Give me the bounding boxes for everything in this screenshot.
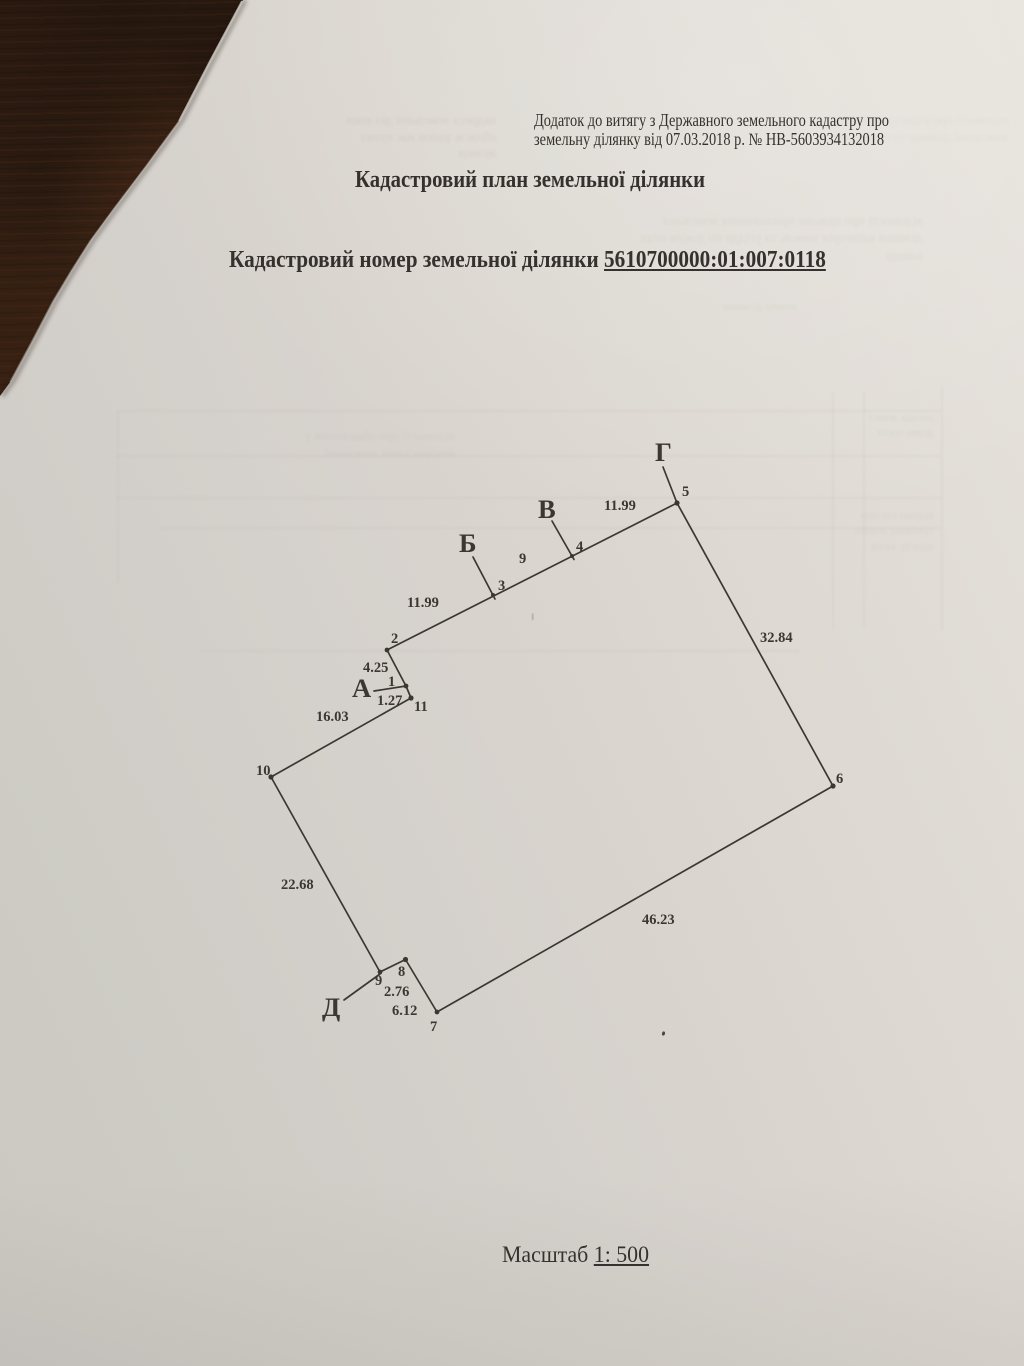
svg-text:2: 2 (391, 631, 398, 647)
svg-text:7: 7 (430, 1019, 437, 1035)
svg-text:22.68: 22.68 (281, 877, 314, 893)
svg-text:8: 8 (398, 964, 405, 980)
svg-text:32.84: 32.84 (760, 630, 793, 646)
svg-text:В: В (538, 494, 556, 524)
svg-text:46.23: 46.23 (642, 912, 675, 928)
svg-text:6.12: 6.12 (392, 1003, 417, 1019)
svg-text:11.99: 11.99 (604, 498, 636, 514)
svg-text:Б: Б (459, 528, 477, 558)
svg-text:11: 11 (414, 699, 428, 715)
svg-text:3: 3 (498, 578, 505, 594)
svg-text:9: 9 (375, 973, 382, 989)
svg-text:4: 4 (576, 539, 583, 555)
svg-text:9: 9 (519, 551, 526, 567)
svg-text:Д: Д (322, 992, 340, 1022)
svg-text:2.76: 2.76 (384, 984, 409, 1000)
svg-text:5: 5 (682, 484, 689, 500)
svg-text:6: 6 (836, 771, 843, 787)
svg-text:Г: Г (655, 437, 672, 467)
svg-text:1: 1 (388, 674, 395, 690)
svg-text:10: 10 (256, 763, 271, 779)
svg-text:16.03: 16.03 (316, 709, 349, 725)
svg-text:1.27: 1.27 (377, 693, 402, 709)
svg-text:11.99: 11.99 (407, 595, 439, 611)
svg-text:А: А (352, 673, 371, 703)
